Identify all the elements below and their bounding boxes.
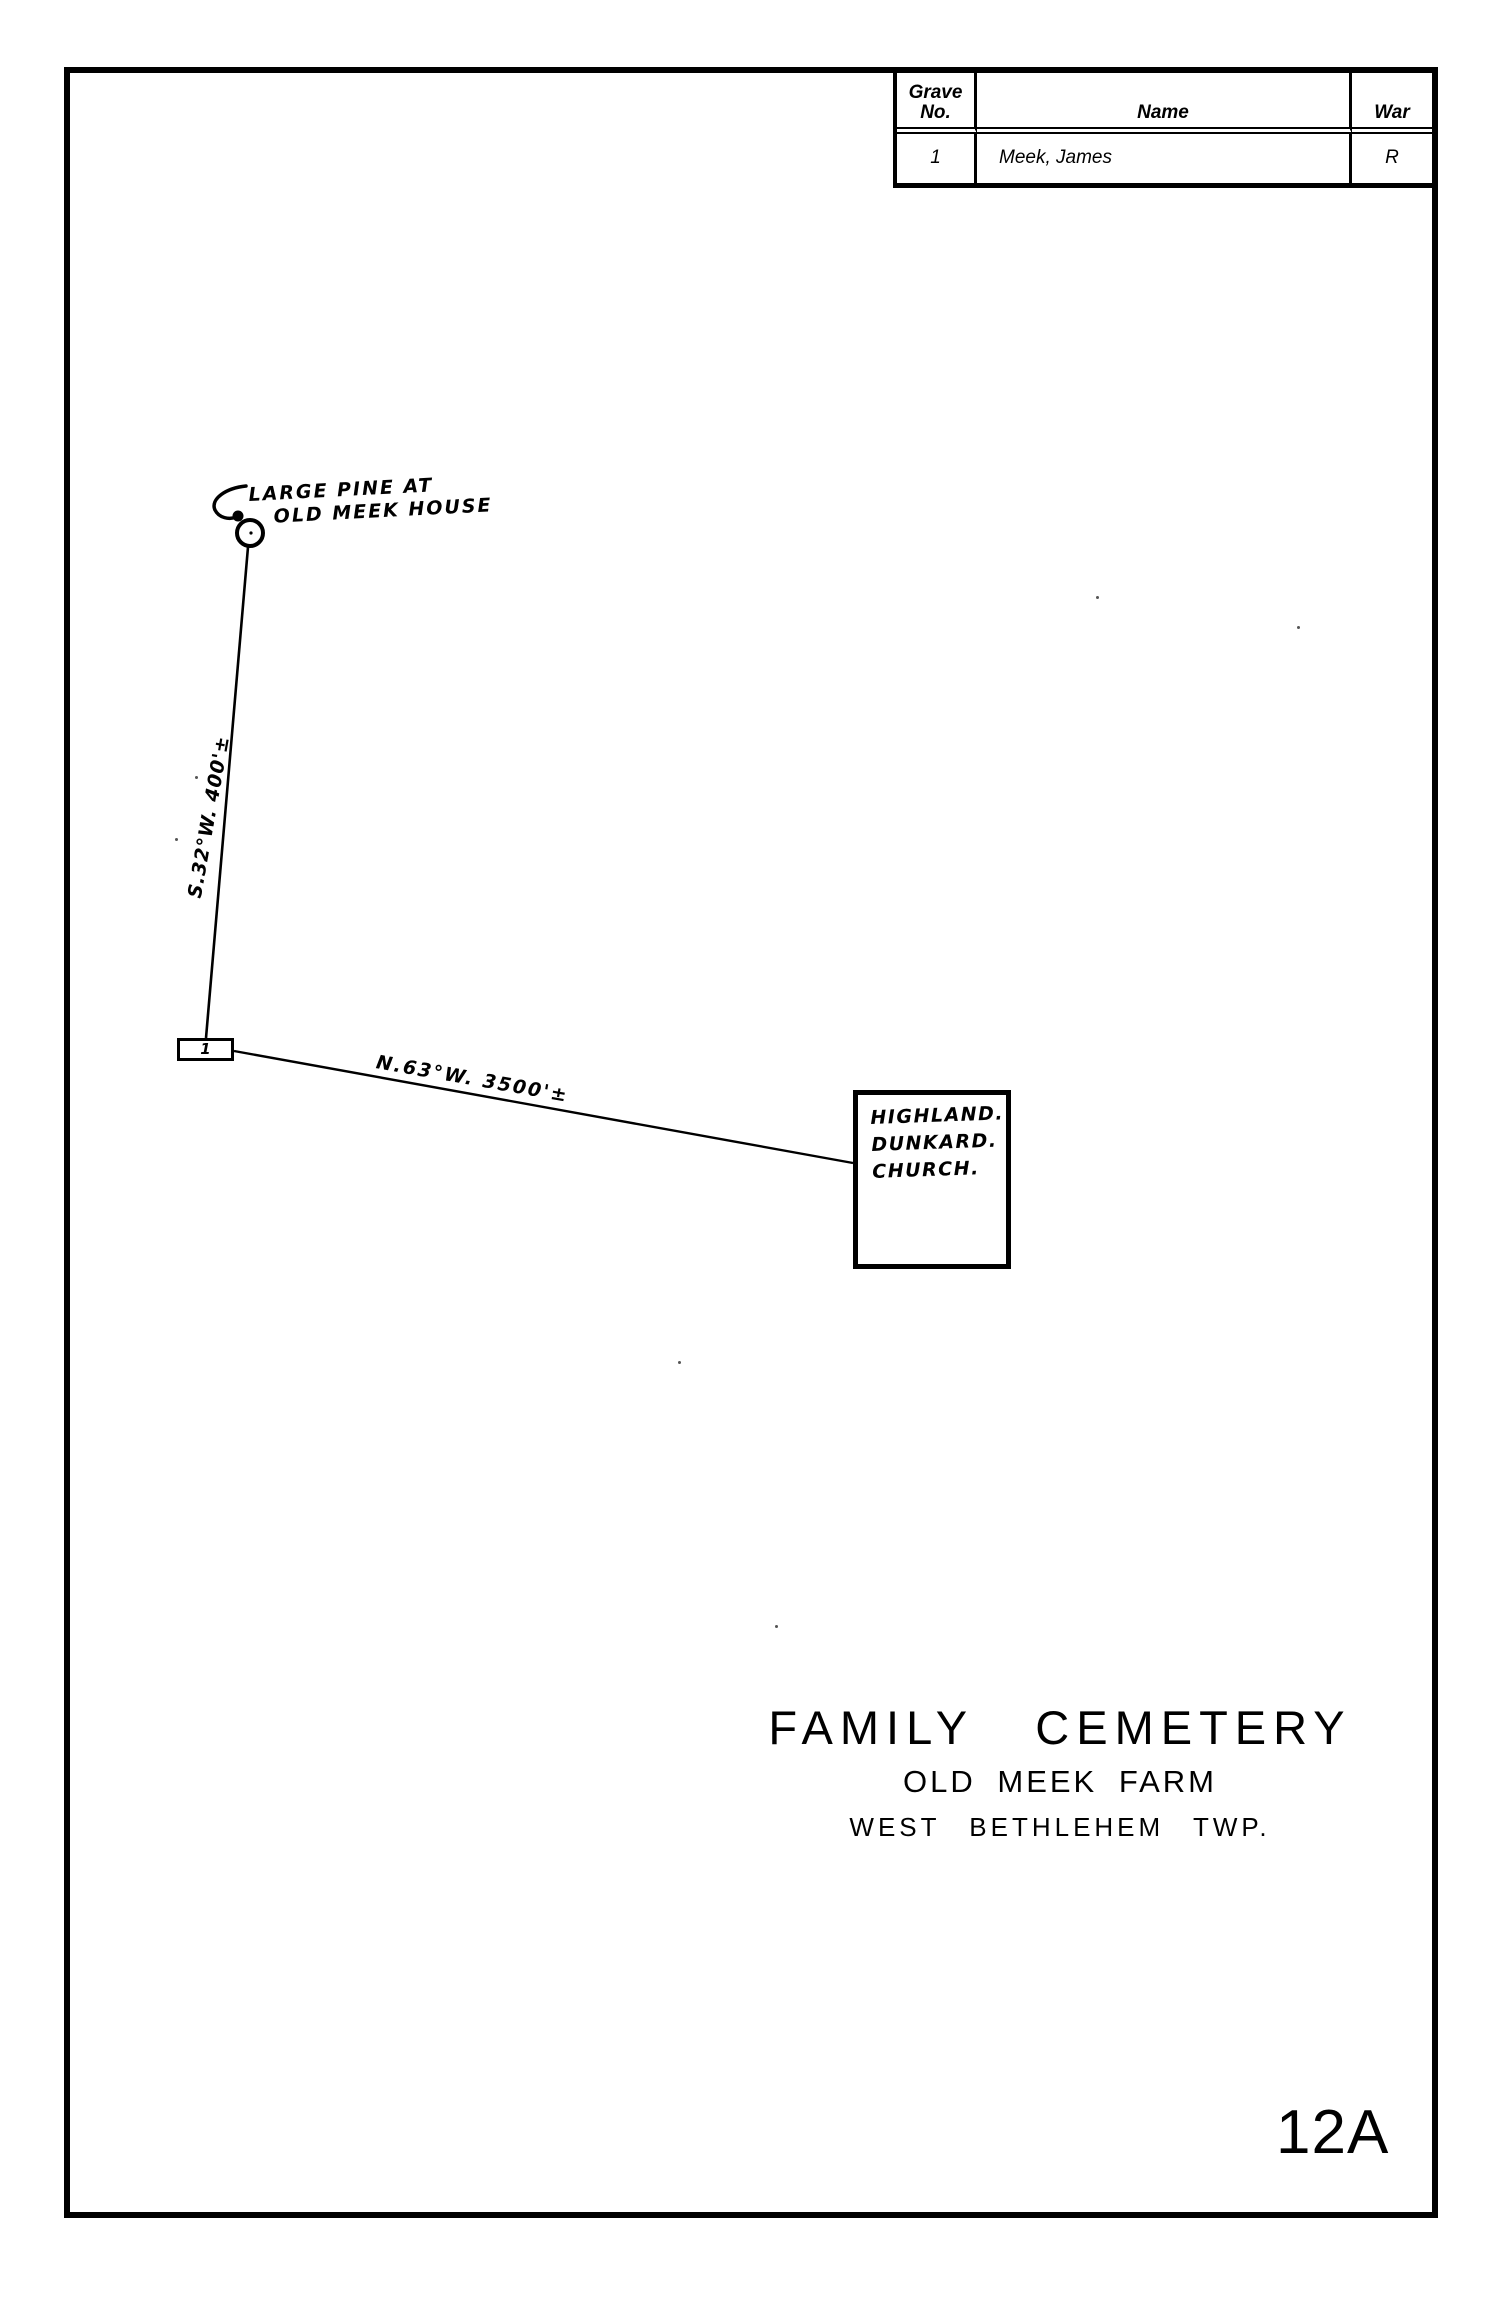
row-war: R <box>1352 134 1432 183</box>
page-number: 12A <box>1276 2102 1389 2164</box>
row-name: Meek, James <box>977 134 1352 183</box>
title-cemetery-name: FAMILY CEMETERY <box>700 1700 1420 1755</box>
scan-speck <box>175 838 178 841</box>
pine-tree-center-dot <box>249 531 252 534</box>
title-block: FAMILY CEMETERY OLD MEEK FARM WEST BETHL… <box>700 1700 1420 1843</box>
bearing-line-grave-to-church <box>234 1051 853 1163</box>
survey-diagram <box>0 0 1500 2318</box>
header-grave-no: Grave No. <box>897 73 977 134</box>
leader-dot <box>233 511 244 522</box>
church-label: HIGHLAND. DUNKARD. CHURCH. <box>870 1100 1009 1186</box>
scan-speck <box>678 1361 681 1364</box>
title-farm-name: OLD MEEK FARM <box>700 1764 1420 1800</box>
header-war: War <box>1352 73 1432 134</box>
header-name: Name <box>977 73 1352 134</box>
grave-marker: 1 <box>177 1038 234 1061</box>
cemetery-record-sheet: Grave No. Name War 1 Meek, James R LARGE… <box>0 0 1500 2318</box>
grave-record-table: Grave No. Name War 1 Meek, James R <box>893 67 1438 188</box>
scan-speck <box>195 776 198 779</box>
row-grave-no: 1 <box>897 134 977 183</box>
scan-speck <box>1297 626 1300 629</box>
church-box: HIGHLAND. DUNKARD. CHURCH. <box>853 1090 1011 1269</box>
scan-speck <box>775 1625 778 1628</box>
scan-speck <box>1096 596 1099 599</box>
title-township: WEST BETHLEHEM TWP. <box>700 1812 1420 1843</box>
